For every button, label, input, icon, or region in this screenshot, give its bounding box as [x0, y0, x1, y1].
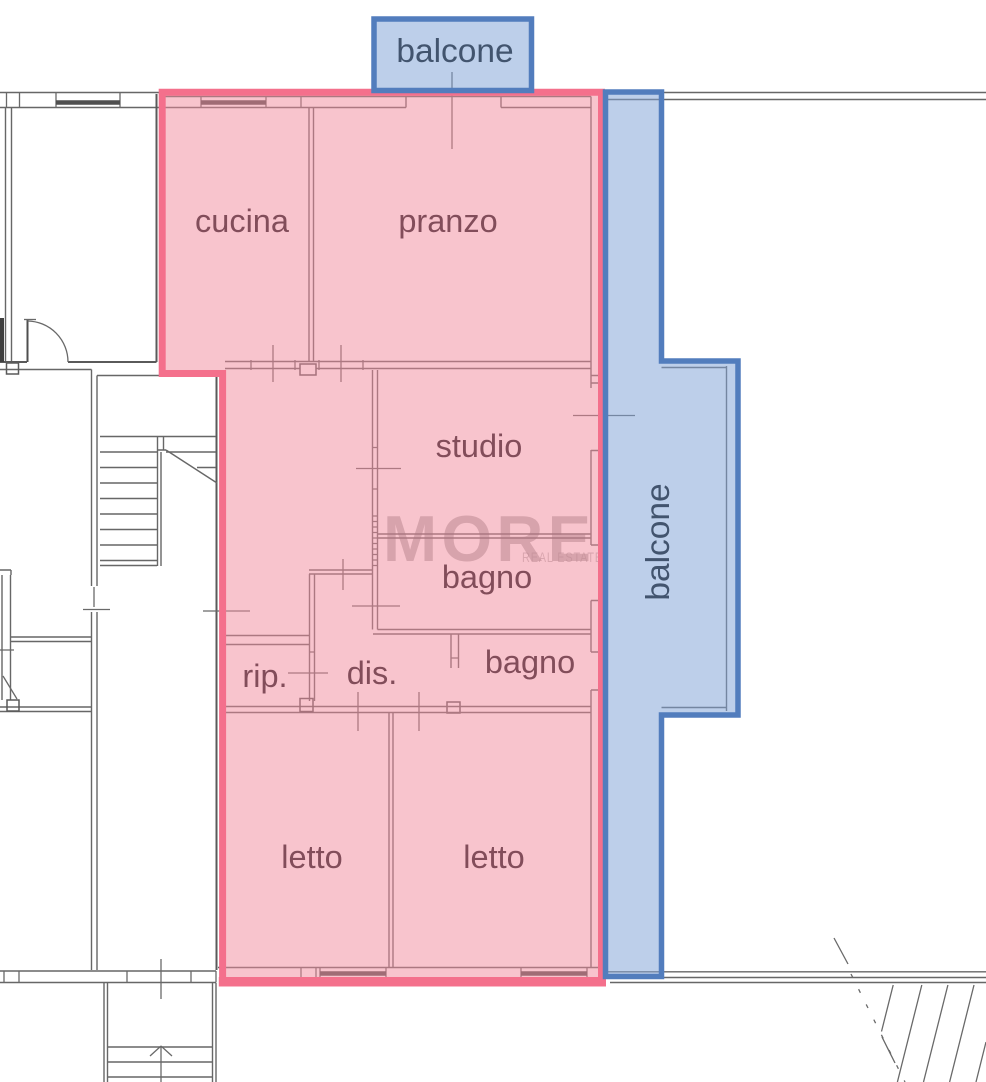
svg-text:cucina: cucina — [195, 203, 290, 239]
svg-text:balcone: balcone — [396, 33, 513, 70]
svg-text:pranzo: pranzo — [398, 203, 497, 239]
svg-text:balcone: balcone — [640, 483, 677, 600]
svg-text:bagno: bagno — [485, 644, 575, 680]
svg-text:letto: letto — [463, 839, 524, 875]
svg-text:rip.: rip. — [242, 658, 287, 694]
svg-text:bagno: bagno — [442, 559, 532, 595]
svg-text:dis.: dis. — [347, 655, 398, 691]
svg-text:studio: studio — [436, 428, 523, 464]
svg-text:letto: letto — [281, 839, 342, 875]
